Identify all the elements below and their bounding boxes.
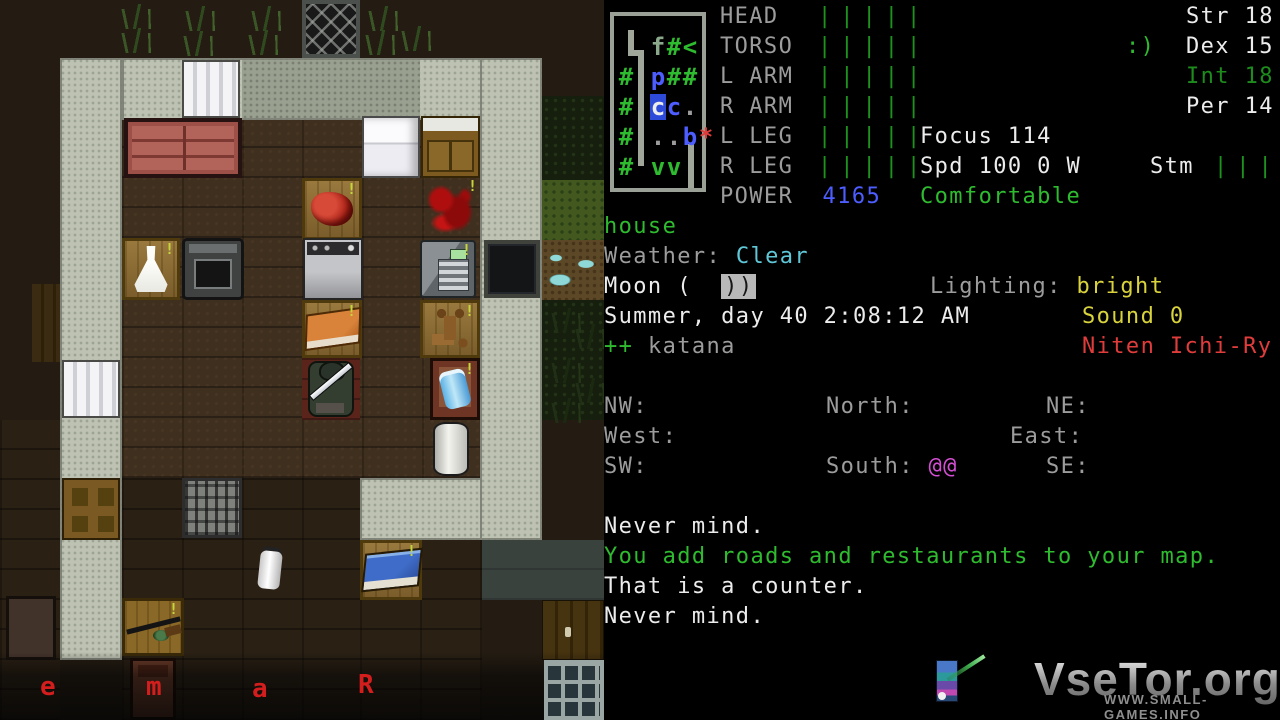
wielded-item: katana xyxy=(648,334,736,359)
tile-door-wood-dark[interactable] xyxy=(32,284,62,362)
compass-nw: NW: xyxy=(604,394,648,420)
tile-cabinet[interactable] xyxy=(421,116,480,178)
creature-symbol-m[interactable]: m xyxy=(146,674,162,700)
minimap-symbol: . xyxy=(650,124,666,150)
minimap-symbol: # xyxy=(618,124,634,150)
tile-wall xyxy=(60,58,122,660)
item-marker: ! xyxy=(465,304,474,318)
item-marker: ! xyxy=(465,362,474,376)
tile-wall-dim xyxy=(242,60,420,118)
minimap-road-path xyxy=(638,50,644,166)
comfort-status: Comfortable xyxy=(920,184,1081,210)
tile-chair[interactable]: ! xyxy=(430,358,480,420)
bodypart-label: L ARM xyxy=(720,64,793,89)
weather-label: Weather: xyxy=(604,244,721,269)
stamina-bars: ||||| xyxy=(1214,154,1280,180)
lighting-label: Lighting: xyxy=(930,274,1062,299)
grass-tuft xyxy=(572,324,604,350)
location-name: house xyxy=(604,214,677,240)
compass-se: SE: xyxy=(1046,454,1090,480)
tile-plain[interactable] xyxy=(240,540,300,600)
lighting-value: bright xyxy=(1076,274,1164,299)
minimap-symbol: . xyxy=(682,94,698,120)
tile-window-glass[interactable] xyxy=(544,660,604,720)
moon-label: Moon ( xyxy=(604,274,692,299)
wield-mod: ++ xyxy=(604,334,633,359)
sprite-dot xyxy=(938,692,946,700)
lighting-row: Lighting: bright xyxy=(930,274,1164,300)
minimap-symbol: v xyxy=(650,154,666,180)
minimap-symbol: b xyxy=(682,124,698,150)
tile-fridge[interactable] xyxy=(362,116,420,178)
tile-blood[interactable]: ! xyxy=(420,178,480,240)
log-message: Never mind. xyxy=(604,514,765,540)
tile-chair-dark[interactable] xyxy=(6,596,56,660)
compass-south-creatures: @@ xyxy=(929,454,958,479)
minimap-symbol: < xyxy=(682,34,698,60)
item-marker: ! xyxy=(468,179,477,193)
creature-symbol-R[interactable]: R xyxy=(358,672,374,698)
log-message: Never mind. xyxy=(604,604,765,630)
date-time: Summer, day 40 2:08:12 AM xyxy=(604,304,970,330)
log-message: You add roads and restaurants to your ma… xyxy=(604,544,1219,570)
tile-fence[interactable] xyxy=(302,0,360,58)
bodypart-row: L LEG||||| xyxy=(720,124,793,150)
minimap-symbol: p xyxy=(650,64,666,90)
minimap-symbol: # xyxy=(666,64,682,90)
minimap-symbol: # xyxy=(666,34,682,60)
log-message: That is a counter. xyxy=(604,574,868,600)
compass-sw: SW: xyxy=(604,454,648,480)
item-cylinder[interactable] xyxy=(433,422,469,476)
compass-north: North: xyxy=(826,394,914,420)
bodypart-row: HEAD||||| xyxy=(720,4,779,30)
bodypart-row: L ARM||||| xyxy=(720,64,793,90)
bodypart-label: R ARM xyxy=(720,94,793,119)
focus-value: Focus 114 xyxy=(920,124,1052,150)
tile-counter[interactable]: ! xyxy=(360,540,422,600)
item-marker: ! xyxy=(407,544,416,558)
power-row: POWER 4165 xyxy=(720,184,881,210)
bodypart-label: R LEG xyxy=(720,154,793,179)
bodypart-hp-bars: ||||| xyxy=(818,4,929,30)
bodypart-row: R ARM||||| xyxy=(720,94,793,120)
minimap-symbol: . xyxy=(666,124,682,150)
grass-tuft xyxy=(118,28,160,54)
speed-value: Spd 100 0 W xyxy=(920,154,1081,180)
item-marker: ! xyxy=(347,182,356,196)
minimap-symbol: c xyxy=(666,94,682,120)
item-marker: ! xyxy=(165,242,174,256)
bodypart-label: L LEG xyxy=(720,124,793,149)
bodypart-label: TORSO xyxy=(720,34,793,59)
game-screen: !!!!!!!!!emaR f#<#p###cc.#..b*#vv HEAD||… xyxy=(0,0,1280,720)
stat-int: Int 18 xyxy=(1186,64,1274,90)
weather-row: Weather: Clear xyxy=(604,244,809,270)
grass-tuft xyxy=(548,398,590,424)
bodypart-hp-bars: ||||| xyxy=(818,64,929,90)
minimap-symbol: * xyxy=(698,124,714,150)
katana-item-sprite xyxy=(930,648,980,706)
player-character[interactable] xyxy=(308,361,354,417)
tile-grass xyxy=(542,180,604,240)
tile-window-dark[interactable] xyxy=(484,240,540,298)
tile-plain[interactable] xyxy=(422,420,480,478)
item-extinguisher[interactable] xyxy=(257,550,283,590)
tile-grate[interactable] xyxy=(182,478,242,538)
minimap-symbol: # xyxy=(618,154,634,180)
stat-per: Per 14 xyxy=(1186,94,1274,120)
tile-couch[interactable] xyxy=(124,118,242,178)
item-flask[interactable] xyxy=(133,246,169,292)
grass-tuft xyxy=(245,30,287,56)
watermark-subtitle: WWW.SMALL-GAMES.INFO xyxy=(1104,692,1280,720)
sidebar: f#<#p###cc.#..b*#vv HEAD|||||TORSO|||||L… xyxy=(604,0,1280,720)
power-value: 4165 xyxy=(823,184,882,209)
tile-counter[interactable]: ! xyxy=(302,178,362,240)
tile-door-white[interactable] xyxy=(62,360,120,418)
grass-tuft xyxy=(248,6,290,32)
minimap-symbol: c xyxy=(650,94,666,120)
tile-door-planks[interactable] xyxy=(542,600,604,660)
grass-tuft xyxy=(118,4,160,30)
bodypart-hp-bars: ||||| xyxy=(818,34,929,60)
tile-table[interactable]: ! xyxy=(122,598,184,656)
minimap-symbol: v xyxy=(666,154,682,180)
compass-west: West: xyxy=(604,424,677,450)
compass-east: East: xyxy=(1010,424,1083,450)
tile-counter[interactable]: ! xyxy=(420,300,480,358)
grass-tuft xyxy=(182,6,224,32)
tile-water-dirt xyxy=(542,240,604,300)
compass-ne: NE: xyxy=(1046,394,1090,420)
bodypart-row: TORSO||||| xyxy=(720,34,793,60)
tile-safe[interactable]: ! xyxy=(420,240,476,298)
item-marker: ! xyxy=(347,304,356,318)
moon-row: Moon ( )) xyxy=(604,274,756,300)
compass-south-label: South: xyxy=(826,454,914,479)
tile-stove[interactable] xyxy=(182,238,244,300)
stat-str: Str 18 xyxy=(1186,4,1274,30)
tile-counter[interactable]: ! xyxy=(302,300,362,358)
game-map[interactable]: !!!!!!!!!emaR xyxy=(0,0,604,720)
bodypart-row: R LEG||||| xyxy=(720,154,793,180)
minimap-symbol: # xyxy=(618,94,634,120)
creature-symbol-a[interactable]: a xyxy=(252,676,268,702)
item-marker: ! xyxy=(462,243,471,257)
tile-door-white[interactable] xyxy=(182,60,240,118)
tile-counter[interactable]: ! xyxy=(122,238,180,300)
tile-floor-shadow xyxy=(482,540,604,600)
stamina-label: Stm xyxy=(1150,154,1194,180)
bodypart-hp-bars: ||||| xyxy=(818,94,929,120)
stat-dex: Dex 15 xyxy=(1186,34,1274,60)
minimap-symbol: f xyxy=(650,34,666,60)
mood-indicator: :) xyxy=(1126,34,1155,60)
martial-art-style: Niten Ichi-Ry xyxy=(1082,334,1272,360)
tile-maroon xyxy=(302,358,360,420)
katana-blade xyxy=(310,364,352,400)
grass-tuft xyxy=(180,31,222,57)
item-marker: ! xyxy=(169,602,178,616)
tile-grass-dark xyxy=(542,96,604,180)
bodypart-hp-bars: ||||| xyxy=(818,124,929,150)
moon-phase: )) xyxy=(721,274,756,299)
tile-wall xyxy=(360,478,482,540)
bodypart-label: HEAD xyxy=(720,4,779,29)
minimap-symbol: # xyxy=(618,64,634,90)
sound-level: Sound 0 xyxy=(1082,304,1185,330)
weather-value: Clear xyxy=(736,244,809,269)
tile-washer[interactable] xyxy=(303,238,363,300)
compass-south: South: @@ xyxy=(826,454,958,480)
tile-door-wood[interactable] xyxy=(62,478,120,540)
bodypart-hp-bars: ||||| xyxy=(818,154,929,180)
minimap-symbol: # xyxy=(682,64,698,90)
grass-tuft xyxy=(398,26,440,52)
tile-wall xyxy=(480,58,542,540)
overview-minimap[interactable]: f#<#p###cc.#..b*#vv xyxy=(610,12,706,192)
creature-symbol-e[interactable]: e xyxy=(40,674,56,700)
power-label: POWER xyxy=(720,184,793,209)
wielded-row: ++ katana xyxy=(604,334,736,360)
